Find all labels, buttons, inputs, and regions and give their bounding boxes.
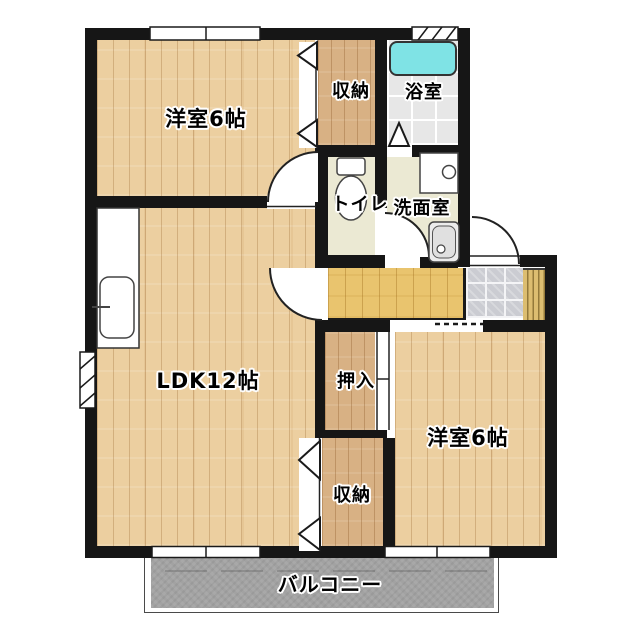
label-bedroom-top-left: 洋室6帖	[165, 103, 247, 133]
wall-top	[85, 28, 470, 40]
wall-column-vertical	[375, 28, 387, 208]
wall-storage-right	[383, 438, 395, 546]
label-bathroom: 浴室	[405, 78, 443, 104]
floorplan-canvas: 洋室6帖 収納 浴室 トイレ 洗面室 LDK12帖 押入 洋室6帖 収納 バルコ…	[0, 0, 640, 640]
door-opening-washroom	[385, 255, 420, 268]
entrance-tile	[466, 268, 523, 318]
label-oshiire: 押入	[337, 367, 375, 393]
wall-toilet-left	[315, 145, 328, 268]
wall-bedroomBR-top	[483, 320, 557, 332]
shoe-cabinet	[523, 268, 545, 320]
wall-bedroomTL-ldk	[97, 196, 267, 208]
wall-left	[85, 28, 97, 558]
label-storage-top: 収納	[332, 77, 370, 103]
label-washroom: 洗面室	[394, 194, 451, 220]
label-storage-bottom: 収納	[333, 481, 371, 507]
label-balcony: バルコニー	[278, 569, 383, 598]
wall-oshiire-top	[315, 320, 390, 332]
wall-right-upper	[458, 28, 470, 267]
label-ldk: LDK12帖	[156, 365, 259, 395]
hallway-floor	[328, 268, 463, 318]
wall-bottom	[85, 546, 557, 558]
door-opening-bedroomTL	[267, 195, 315, 209]
door-opening-entrance	[470, 255, 520, 267]
label-bedroom-bottom-right: 洋室6帖	[427, 422, 509, 452]
door-opening-ldk	[315, 268, 328, 318]
wall-oshiire-storage	[315, 430, 387, 438]
label-toilet: トイレ	[332, 190, 389, 216]
wall-right-lower	[545, 255, 557, 558]
entry-step-strip	[390, 318, 483, 332]
wall-toilet-bottom	[315, 255, 385, 268]
wall-washroom-bottom	[420, 255, 458, 268]
wall-bath-washroom	[412, 145, 458, 157]
wall-oshiire-left	[315, 332, 325, 430]
